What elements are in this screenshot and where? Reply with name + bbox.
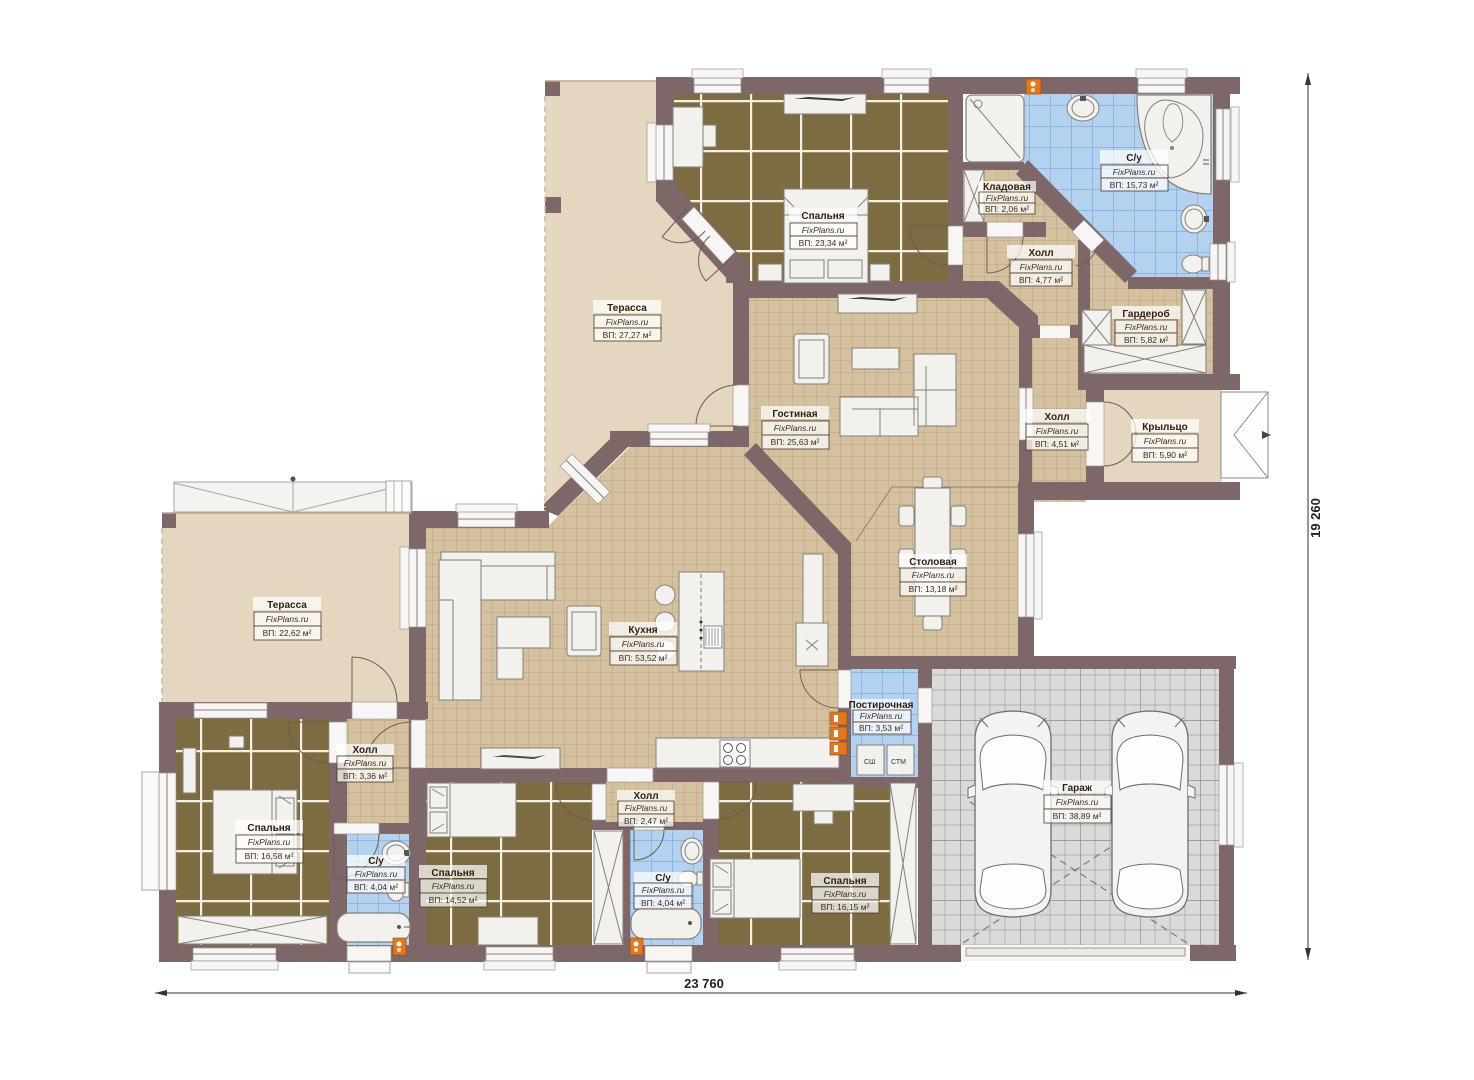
svg-text:ВП: 2,06 м²: ВП: 2,06 м² (985, 204, 1029, 214)
svg-text:Холл: Холл (1028, 248, 1053, 259)
svg-text:ВП: 15,73 м²: ВП: 15,73 м² (1110, 180, 1159, 190)
svg-text:ВП: 14,52 м²: ВП: 14,52 м² (429, 895, 478, 905)
svg-text:ВП: 4,04 м²: ВП: 4,04 м² (641, 898, 685, 908)
svg-text:ВП: 3,53 м²: ВП: 3,53 м² (859, 723, 903, 733)
svg-text:FixPlans.ru: FixPlans.ru (802, 225, 845, 235)
svg-text:ВП: 4,04 м²: ВП: 4,04 м² (354, 882, 398, 892)
svg-text:FixPlans.ru: FixPlans.ru (432, 881, 475, 891)
svg-text:ВП: 27,27 м²: ВП: 27,27 м² (603, 330, 652, 340)
svg-text:Терасса: Терасса (267, 600, 307, 611)
svg-text:ВП: 5,82 м²: ВП: 5,82 м² (1124, 335, 1168, 345)
svg-text:FixPlans.ru: FixPlans.ru (622, 639, 665, 649)
svg-text:FixPlans.ru: FixPlans.ru (860, 711, 903, 721)
svg-text:С/у: С/у (655, 873, 671, 884)
svg-text:FixPlans.ru: FixPlans.ru (1125, 322, 1168, 332)
svg-text:Кухня: Кухня (628, 625, 657, 636)
svg-text:FixPlans.ru: FixPlans.ru (1144, 436, 1187, 446)
svg-text:FixPlans.ru: FixPlans.ru (606, 317, 649, 327)
svg-text:19 260: 19 260 (1308, 498, 1323, 538)
svg-text:ВП: 5,90 м²: ВП: 5,90 м² (1143, 450, 1187, 460)
svg-text:Терасса: Терасса (607, 303, 647, 314)
svg-text:Спальня: Спальня (247, 823, 290, 834)
svg-text:ВП: 23,34 м²: ВП: 23,34 м² (799, 238, 848, 248)
svg-text:Гардероб: Гардероб (1122, 308, 1169, 320)
svg-text:ВП: 16,58 м²: ВП: 16,58 м² (245, 851, 294, 861)
svg-text:FixPlans.ru: FixPlans.ru (248, 837, 291, 847)
svg-text:Крыльцо: Крыльцо (1142, 422, 1188, 433)
svg-text:СШ: СШ (864, 759, 875, 766)
svg-text:ВП: 3,36 м²: ВП: 3,36 м² (343, 771, 387, 781)
svg-text:FixPlans.ru: FixPlans.ru (986, 193, 1029, 203)
svg-text:FixPlans.ru: FixPlans.ru (1056, 797, 1099, 807)
svg-text:ВП: 2,47 м²: ВП: 2,47 м² (624, 816, 668, 826)
svg-text:FixPlans.ru: FixPlans.ru (642, 885, 685, 895)
svg-text:FixPlans.ru: FixPlans.ru (266, 614, 309, 624)
svg-text:FixPlans.ru: FixPlans.ru (355, 869, 398, 879)
svg-text:Гостиная: Гостиная (772, 409, 817, 420)
svg-text:FixPlans.ru: FixPlans.ru (1020, 262, 1063, 272)
svg-text:FixPlans.ru: FixPlans.ru (774, 423, 817, 433)
svg-text:FixPlans.ru: FixPlans.ru (1036, 426, 1079, 436)
svg-text:ВП: 53,52 м²: ВП: 53,52 м² (619, 653, 668, 663)
svg-text:FixPlans.ru: FixPlans.ru (1113, 167, 1156, 177)
svg-text:Спальня: Спальня (431, 868, 474, 879)
svg-text:23 760: 23 760 (684, 976, 724, 991)
svg-text:Кладовая: Кладовая (983, 182, 1031, 193)
svg-text:Холл: Холл (1044, 412, 1069, 423)
svg-text:С/у: С/у (368, 856, 384, 867)
svg-text:ВП: 4,51 м²: ВП: 4,51 м² (1035, 439, 1079, 449)
svg-text:FixPlans.ru: FixPlans.ru (912, 570, 955, 580)
svg-text:Спальня: Спальня (801, 211, 844, 222)
svg-text:ВП: 38,89 м²: ВП: 38,89 м² (1053, 811, 1102, 821)
svg-text:Столовая: Столовая (909, 557, 957, 568)
svg-text:FixPlans.ru: FixPlans.ru (344, 758, 387, 768)
svg-text:Спальня: Спальня (823, 876, 866, 887)
svg-text:Постирочная: Постирочная (849, 700, 914, 711)
svg-text:ВП: 4,77 м²: ВП: 4,77 м² (1019, 275, 1063, 285)
svg-text:ВП: 16,15 м²: ВП: 16,15 м² (821, 902, 870, 912)
svg-text:С/у: С/у (1126, 153, 1142, 164)
svg-text:Гараж: Гараж (1062, 783, 1093, 794)
svg-text:ВП: 22,62 м²: ВП: 22,62 м² (263, 628, 312, 638)
svg-text:ВП: 13,18 м²: ВП: 13,18 м² (909, 584, 958, 594)
svg-text:Холл: Холл (352, 745, 377, 756)
svg-text:ВП: 25,63 м²: ВП: 25,63 м² (771, 437, 820, 447)
svg-text:FixPlans.ru: FixPlans.ru (625, 803, 668, 813)
svg-text:СТМ: СТМ (891, 759, 906, 766)
svg-text:Холл: Холл (633, 791, 658, 802)
svg-text:FixPlans.ru: FixPlans.ru (824, 889, 867, 899)
